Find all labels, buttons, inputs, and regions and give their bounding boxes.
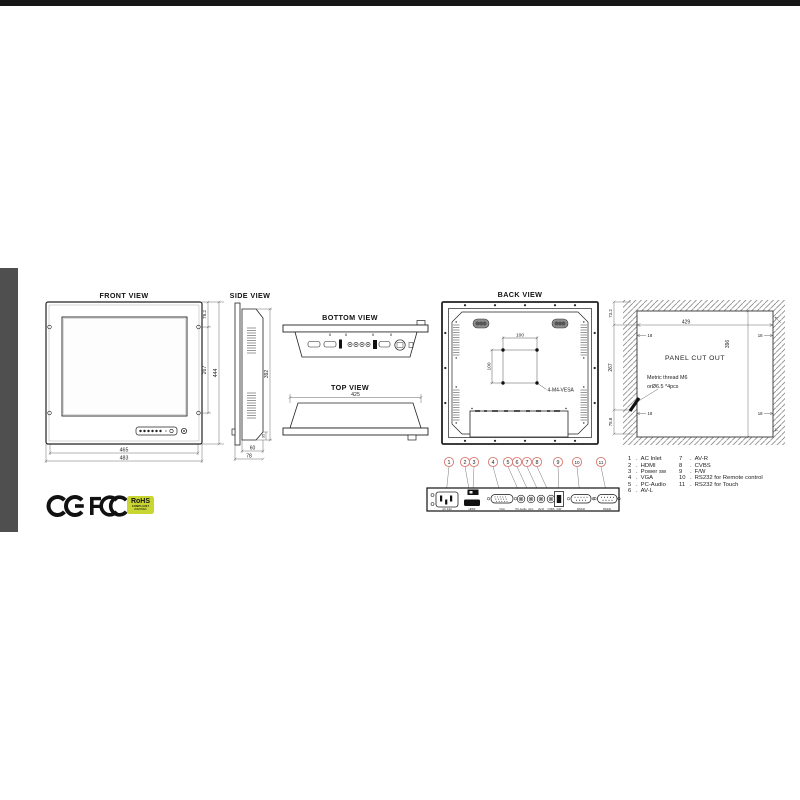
legend-item-3: 3.Power sw [628, 469, 666, 475]
bottom-view-drawing [278, 318, 433, 364]
rohs-badge: RoHS COMPLIANT 2002/95/EC [127, 496, 154, 514]
side-power-knob [232, 429, 235, 435]
svg-text:AV-R: AV-R [538, 507, 544, 511]
callout-3: 3 [469, 457, 478, 466]
bottom-bezel-bar [283, 325, 428, 332]
power-switch [468, 490, 479, 496]
dim-front-height: 444 [213, 369, 219, 378]
legend-item-10: 10.RS232 for Remote control [679, 475, 763, 481]
dim-side-height: 392 [264, 370, 270, 379]
legend-item-5: 5.PC-Audio [628, 481, 666, 487]
dim-front-top: 78.2 [202, 310, 207, 319]
dim-cutout-width: 429 [682, 320, 691, 326]
svg-text:2: 2 [464, 460, 467, 466]
svg-text:VGA: VGA [499, 507, 505, 511]
page-top-edge [0, 0, 800, 6]
legend-item-6: 6.AV-L [628, 488, 666, 494]
svg-text:6: 6 [516, 460, 519, 466]
callout-1: 1 [444, 457, 453, 466]
panel-cutout-title: PANEL CUT OUT [665, 355, 725, 362]
svg-text:HDMI: HDMI [469, 507, 476, 511]
dim-side-chamfer: 35 [261, 433, 266, 438]
vesa-label: 4-M4-VESA [548, 388, 575, 394]
svg-text:RS232: RS232 [603, 507, 611, 511]
svg-text:1: 1 [448, 460, 451, 466]
callout-9: 9 [553, 457, 562, 466]
vga-port [487, 495, 517, 504]
svg-text:AC Inlet: AC Inlet [442, 507, 452, 511]
legend-column-1: 1.AC Inlet 2.HDMI 3.Power sw 4.VGA 5.PC-… [628, 456, 666, 494]
back-vesa: 100 100 4-M4-VESA [486, 332, 574, 393]
dim-cutout-corner-br: 18 [758, 411, 763, 416]
callout-5: 5 [503, 457, 512, 466]
dim-front-mid: 267 [202, 366, 208, 375]
legend-item-11: 11.RS232 for Touch [679, 481, 763, 487]
top-bezel-bar [283, 428, 428, 435]
callout-6: 6 [512, 457, 521, 466]
back-connector-recess [470, 408, 568, 437]
front-screen [62, 317, 187, 416]
top-tab [408, 435, 416, 440]
panel-cutout-drawing: 429 396 73.2 267 75.8 18 18 18 18 PANEL … [600, 292, 800, 452]
dim-front-outer-width: 483 [120, 455, 129, 461]
hdmi-port [464, 500, 480, 507]
callout-8: 8 [532, 457, 541, 466]
cutout-note-line1: Metric thread M6 [647, 375, 687, 381]
svg-text:RS232: RS232 [577, 507, 585, 511]
dim-side-depth-total: 78 [246, 453, 252, 459]
callout-10: 10 [572, 457, 581, 466]
dim-cutout-corner-tl: 18 [648, 333, 653, 338]
callout-7: 7 [522, 457, 531, 466]
top-view-drawing: 425 [278, 376, 433, 446]
dim-cutout-left-bottom: 75.8 [608, 417, 613, 426]
rohs-title: RoHS [127, 498, 154, 505]
svg-text:10: 10 [574, 460, 580, 465]
dim-cutout-left-top: 73.2 [608, 309, 613, 318]
svg-text:7: 7 [526, 460, 529, 466]
top-chassis [290, 403, 421, 428]
svg-text:8: 8 [536, 460, 539, 466]
back-handles [473, 319, 568, 328]
dim-cutout-left-mid: 267 [608, 363, 614, 372]
dim-top-width: 425 [351, 392, 360, 398]
dim-cutout-corner-bl: 18 [648, 411, 653, 416]
side-view-drawing: 392 35 60 78 [222, 290, 280, 472]
cutout-note-line2: orØ6.5 *4pcs [647, 384, 679, 390]
rohs-directive: 2002/95/EC [127, 508, 154, 511]
dim-vesa-width: 100 [516, 332, 524, 338]
svg-text:AV-L: AV-L [528, 507, 534, 511]
dim-cutout-corner-tr: 18 [758, 333, 763, 338]
svg-text:CVBS: CVBS [547, 507, 554, 511]
callout-circles: 1 2 3 4 5 6 7 8 9 10 11 [444, 457, 605, 466]
front-view-drawing: 465 483 78.2 267 444 [40, 290, 230, 472]
cutout-opening [637, 311, 773, 437]
svg-text:F/W: F/W [557, 507, 562, 511]
io-panel-drawing: 1 2 3 4 5 6 7 8 9 10 11 [420, 452, 625, 514]
svg-text:5: 5 [507, 460, 510, 466]
callout-11: 11 [596, 457, 605, 466]
legend-column-2: 7.AV-R 8.CVBS 9.F/W 10.RS232 for Remote … [679, 456, 763, 488]
dim-front-inner-width: 465 [120, 447, 129, 453]
side-body [242, 309, 263, 440]
dim-vesa-height: 100 [486, 362, 492, 370]
datasheet-page: FRONT VIEW SIDE VIEW BOTTOM VIEW TOP VIE… [0, 0, 800, 800]
svg-text:9: 9 [557, 460, 560, 466]
dim-side-depth-body: 60 [250, 445, 256, 451]
svg-text:PC-Audio: PC-Audio [515, 507, 527, 511]
svg-text:4: 4 [492, 460, 495, 466]
bottom-tab [417, 321, 425, 326]
callout-2: 2 [460, 457, 469, 466]
svg-text:11: 11 [599, 460, 604, 465]
back-view-drawing: 100 100 4-M4-VESA [435, 288, 610, 460]
dim-cutout-height: 396 [725, 340, 731, 349]
page-left-strip [0, 268, 18, 532]
ce-mark-icon [47, 494, 85, 518]
svg-text:3: 3 [473, 460, 476, 466]
legend-item-1: 1.AC Inlet [628, 456, 666, 462]
callout-4: 4 [488, 457, 497, 466]
usb-port [555, 492, 564, 507]
side-bezel [235, 303, 240, 445]
